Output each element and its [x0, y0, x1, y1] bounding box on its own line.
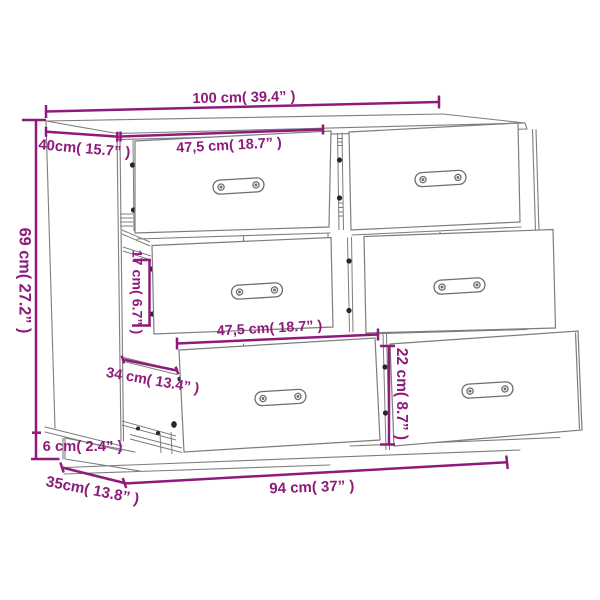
svg-text:17 cm( 6.7” ): 17 cm( 6.7” )	[129, 250, 145, 335]
svg-text:69 cm( 27.2” ): 69 cm( 27.2” )	[15, 228, 33, 334]
svg-text:100 cm( 39.4” ): 100 cm( 39.4” )	[192, 89, 296, 107]
svg-text:94 cm( 37” ): 94 cm( 37” )	[269, 477, 355, 497]
svg-text:6 cm( 2.4” ): 6 cm( 2.4” )	[43, 439, 123, 455]
svg-text:22 cm( 8.7” ): 22 cm( 8.7” )	[393, 348, 410, 440]
